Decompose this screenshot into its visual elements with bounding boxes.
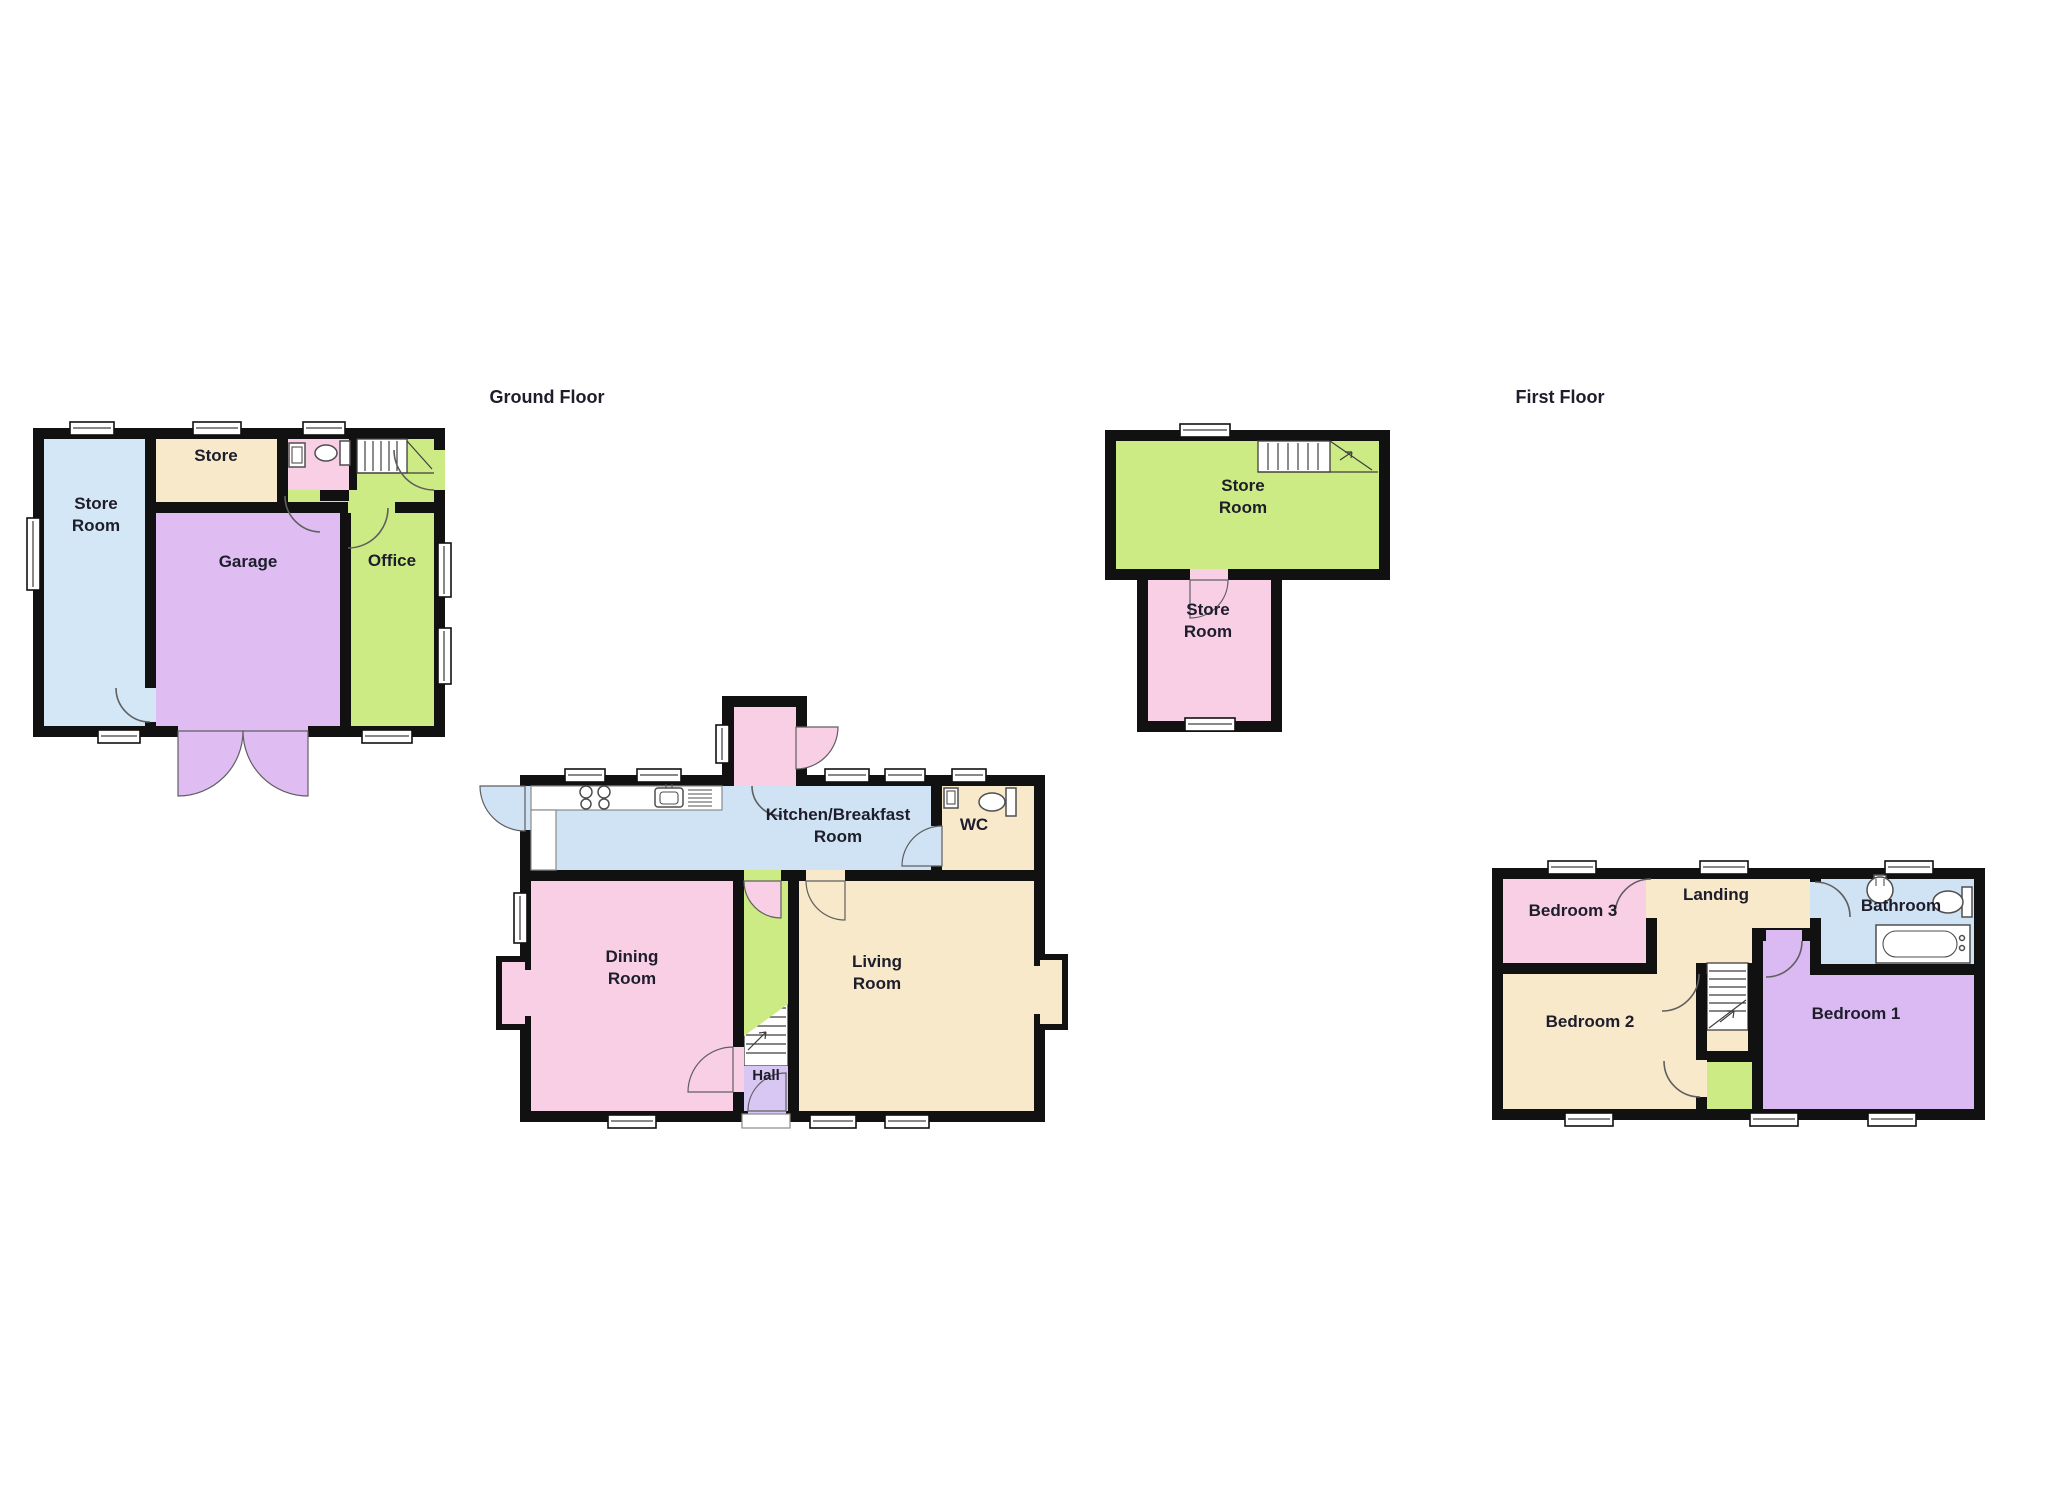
floorplan-canvas: Ground Floor First Floor <box>0 0 2048 1489</box>
counter-run <box>531 810 556 870</box>
room-fill-vestibule <box>288 490 434 502</box>
chimney-gap <box>520 970 531 1016</box>
door-gap <box>806 870 845 881</box>
room-label-store-room-lower: Room <box>1184 622 1232 641</box>
room-fill-store-room <box>44 439 145 726</box>
stair-flight <box>1258 441 1330 472</box>
room-fill-bedroom2 <box>1503 974 1696 1109</box>
first-floor-stairs <box>1707 963 1748 1030</box>
wall <box>1748 963 1763 1051</box>
wall <box>1503 963 1657 974</box>
toilet-icon <box>979 793 1005 811</box>
door-leaf <box>480 786 525 831</box>
room-label-landing: Landing <box>1683 885 1749 904</box>
main-house-plan: Kitchen/Breakfast Room WC Dining Room Li… <box>480 696 1068 1128</box>
room-label-store-room-upper: Room <box>1219 498 1267 517</box>
front-door-step <box>742 1114 790 1128</box>
toilet-cistern-icon <box>1006 788 1016 816</box>
wall <box>340 513 351 726</box>
room-fill-porch <box>734 707 796 786</box>
room-label-garage: Garage <box>219 552 278 571</box>
wall <box>145 439 156 726</box>
door-gap <box>145 688 156 722</box>
room-fill-landing <box>1657 928 1752 963</box>
toilet-cistern-icon <box>340 441 350 465</box>
door-gap <box>1696 1060 1707 1097</box>
door-gap <box>1646 879 1657 918</box>
wall <box>1707 1051 1752 1062</box>
bath-tap-icon <box>1960 936 1965 941</box>
ground-floor-title: Ground Floor <box>490 387 605 407</box>
door-gap <box>1657 963 1696 974</box>
hob-burner-icon <box>598 786 610 798</box>
room-fill-garage <box>156 513 340 726</box>
door-gap <box>434 450 445 490</box>
room-label-living: Living <box>852 952 902 971</box>
hob-burner-icon <box>599 799 609 809</box>
toilet-icon <box>315 445 337 461</box>
floorplan-page: Ground Floor First Floor <box>0 0 2048 1489</box>
wall <box>531 870 1034 881</box>
wall <box>277 439 288 502</box>
room-label-store-room-lower: Store <box>1186 600 1229 619</box>
door-gap <box>733 1047 744 1092</box>
garage-door-leaf <box>178 731 243 796</box>
bath-tap-icon <box>1960 946 1965 951</box>
room-label-bedroom1: Bedroom 1 <box>1812 1004 1901 1023</box>
wall <box>395 502 434 513</box>
room-label-living: Room <box>853 974 901 993</box>
room-label-store: Store <box>194 446 237 465</box>
first-floor-plan: Bedroom 3 Landing Bathroom Bedroom 2 Bed… <box>1492 861 1985 1126</box>
hob-burner-icon <box>581 799 591 809</box>
room-label-bedroom3: Bedroom 3 <box>1529 901 1618 920</box>
wall <box>145 502 348 513</box>
room-fill-landing <box>1707 1030 1748 1051</box>
door-gap <box>1810 882 1821 918</box>
room-label-hall: Hall <box>752 1067 780 1084</box>
room-label-kitchen: Room <box>814 827 862 846</box>
stair-flight <box>1707 963 1748 1030</box>
garage-door-leaf <box>243 731 308 796</box>
room-label-office: Office <box>368 551 416 570</box>
room-label-store-room: Room <box>72 516 120 535</box>
room-label-kitchen: Kitchen/Breakfast <box>766 805 911 824</box>
room-label-dining: Dining <box>606 947 659 966</box>
outbuilding-plan: Store Room Store Garage Office <box>27 422 451 796</box>
door-gap <box>1190 569 1228 580</box>
wall <box>1646 918 1657 974</box>
hob-burner-icon <box>580 786 592 798</box>
room-label-bedroom2: Bedroom 2 <box>1546 1012 1635 1031</box>
door-gap <box>1766 930 1802 941</box>
first-floor-title: First Floor <box>1516 387 1605 407</box>
wall <box>1810 964 1974 975</box>
room-label-bathroom: Bathroom <box>1861 896 1941 915</box>
room-fill-cupboard <box>1707 1062 1752 1109</box>
door-leaf <box>796 727 838 769</box>
room-label-store-room-upper: Store <box>1221 476 1264 495</box>
store-building-plan: Store Room Store Room <box>1105 424 1390 732</box>
chimney-gap <box>1034 966 1045 1014</box>
room-label-store-room: Store <box>74 494 117 513</box>
room-label-dining: Room <box>608 969 656 988</box>
wall <box>320 490 349 501</box>
door-gap <box>744 870 781 881</box>
wall <box>788 881 799 1111</box>
room-label-wc: WC <box>960 815 988 834</box>
